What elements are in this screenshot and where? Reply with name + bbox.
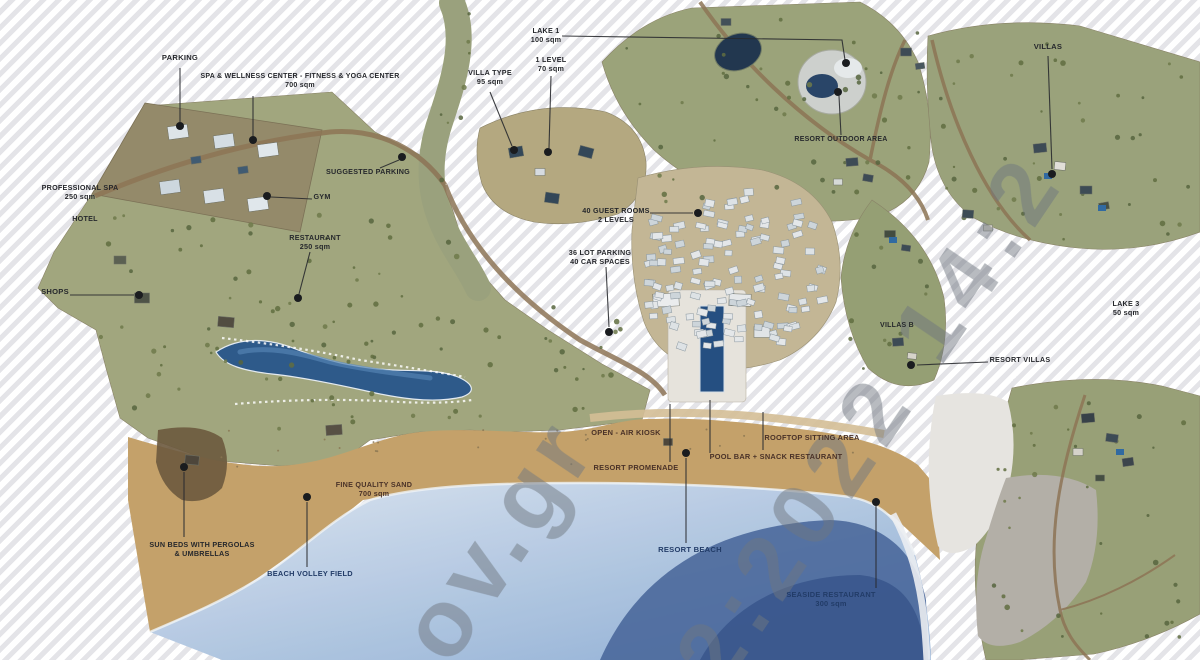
tree: [1032, 472, 1037, 477]
tree: [292, 340, 295, 343]
tree: [1186, 185, 1190, 189]
tree: [483, 327, 488, 332]
tree: [945, 187, 948, 190]
map-label-hotel: HOTEL: [72, 214, 98, 223]
villa-pool: [889, 237, 897, 243]
tree: [1054, 405, 1059, 410]
tree: [582, 368, 584, 370]
tree: [277, 427, 281, 431]
tree: [129, 269, 133, 273]
building: [662, 306, 672, 315]
building: [191, 156, 202, 164]
tree: [453, 409, 458, 414]
masterplan-canvas: ov.gr 12:2022 14:2 PARKINGSPA & WELLNESS…: [0, 0, 1200, 660]
masterplan-map: ov.gr 12:2022 14:2 PARKINGSPA & WELLNESS…: [0, 0, 1200, 660]
tree: [724, 74, 729, 79]
tree: [916, 31, 920, 35]
tree: [1010, 74, 1013, 77]
tree: [992, 583, 996, 587]
map-label-lake-1: LAKE 1100 sqm: [531, 26, 562, 44]
beach-speck: [585, 434, 587, 436]
tree: [802, 97, 806, 101]
map-label-resort-beach: RESORT BEACH: [658, 545, 722, 554]
building: [705, 281, 715, 287]
building: [737, 325, 746, 333]
leader-line-lot-parking: [606, 267, 609, 327]
tree: [1168, 62, 1171, 65]
tree: [755, 98, 758, 101]
leader-dot-gym: [263, 192, 271, 200]
building: [657, 259, 666, 266]
tree: [450, 319, 455, 324]
building: [885, 231, 896, 238]
map-label-rooftop-sitting-area: ROOFTOP SITTING AREA: [764, 433, 860, 442]
tree: [386, 224, 391, 229]
building: [664, 249, 672, 255]
villa-pool: [1098, 205, 1106, 211]
map-label-parking: PARKING: [162, 53, 198, 62]
tree: [369, 218, 374, 223]
tree: [177, 388, 180, 391]
tree: [373, 301, 378, 306]
tree: [1153, 560, 1159, 566]
leader-dot-beach-volley: [303, 493, 311, 501]
tree: [246, 269, 251, 274]
tree: [554, 368, 558, 372]
tree: [347, 360, 351, 364]
tree: [1099, 542, 1102, 545]
building: [1033, 143, 1047, 153]
tree: [224, 359, 228, 363]
leader-dot-lake-1: [842, 59, 850, 67]
leader-dot-villa-type: [510, 146, 518, 154]
tree: [157, 372, 162, 377]
building: [203, 188, 225, 204]
tree: [439, 178, 444, 183]
tree: [440, 347, 443, 350]
tree: [186, 225, 191, 230]
tree: [549, 339, 553, 343]
tree: [1170, 621, 1173, 624]
tree: [122, 214, 125, 217]
tree: [1012, 423, 1016, 427]
building: [725, 250, 732, 256]
leader-dot-resort-outdoor-area: [834, 88, 842, 96]
tree: [879, 246, 883, 250]
tree: [1137, 414, 1142, 419]
leader-dot-lot-parking: [605, 328, 613, 336]
building: [834, 179, 843, 185]
tree: [852, 41, 856, 45]
tree: [321, 343, 326, 348]
tree: [560, 349, 565, 354]
tree: [113, 216, 117, 220]
tree: [1004, 605, 1010, 611]
building: [773, 247, 784, 255]
tree: [774, 107, 778, 111]
tree: [275, 306, 280, 311]
building: [686, 314, 694, 321]
tree: [854, 232, 859, 237]
building: [257, 142, 279, 158]
building: [714, 240, 723, 247]
map-label-gym: GYM: [313, 192, 330, 201]
tree: [210, 217, 215, 222]
building: [664, 439, 673, 446]
map-label-resort-villas: RESORT VILLAS: [990, 355, 1051, 364]
tree: [440, 113, 443, 116]
beach-speck: [377, 442, 379, 444]
building: [673, 257, 684, 264]
tree: [952, 177, 957, 182]
tree: [713, 139, 715, 141]
tree: [614, 319, 620, 325]
beach-speck: [277, 450, 279, 452]
tree: [347, 303, 352, 308]
tree: [436, 316, 440, 320]
building: [1106, 433, 1119, 443]
building: [798, 298, 807, 305]
building: [707, 305, 715, 312]
tree: [466, 40, 470, 44]
building: [218, 316, 235, 327]
building: [805, 248, 814, 255]
leader-dot-resort-beach: [682, 449, 690, 457]
tree: [807, 82, 812, 87]
tree: [467, 12, 470, 15]
tree: [1153, 178, 1157, 182]
tree: [1181, 420, 1186, 425]
tree: [1054, 58, 1058, 62]
building: [1081, 413, 1095, 423]
tree: [446, 240, 451, 245]
tree: [849, 318, 854, 323]
tree: [215, 347, 219, 351]
tree: [1152, 447, 1154, 449]
tree: [364, 342, 368, 346]
map-label-villas-b: VILLAS B: [880, 322, 914, 329]
tree: [1128, 203, 1131, 206]
leader-dot-sun-beds: [180, 463, 188, 471]
tree: [207, 327, 210, 330]
building: [862, 174, 873, 183]
building: [114, 256, 126, 264]
tree: [1180, 75, 1184, 79]
tree: [970, 54, 974, 58]
tree: [848, 337, 852, 341]
leader-dot-villas-north: [1048, 170, 1056, 178]
tree: [132, 405, 137, 410]
tree: [785, 81, 790, 86]
leader-dot-restaurant: [294, 294, 302, 302]
tree: [601, 374, 605, 378]
tree: [872, 265, 877, 270]
tree: [939, 97, 943, 101]
tree: [1131, 136, 1135, 140]
tree: [392, 331, 396, 335]
tree: [1040, 110, 1042, 112]
building: [238, 166, 249, 174]
tree: [1062, 238, 1065, 241]
tree: [672, 178, 674, 180]
beach-speck: [324, 439, 326, 441]
building: [185, 455, 200, 465]
building: [213, 133, 235, 149]
tree: [563, 366, 566, 369]
tree: [1177, 222, 1181, 226]
building: [846, 157, 859, 166]
tree: [722, 53, 726, 57]
tree: [497, 335, 501, 339]
villa-pool: [1116, 449, 1124, 455]
building: [535, 169, 545, 176]
tree: [872, 93, 877, 98]
tree: [1160, 221, 1166, 227]
tree: [658, 145, 663, 150]
tree: [370, 355, 374, 359]
tree: [106, 241, 111, 246]
tree: [572, 407, 577, 412]
building: [744, 188, 754, 196]
tree: [882, 117, 887, 122]
tree: [1147, 514, 1150, 517]
tree: [1173, 583, 1177, 587]
building: [1096, 475, 1105, 481]
beach-speck: [236, 466, 238, 468]
tree: [151, 349, 156, 354]
tree: [941, 124, 946, 129]
tree: [233, 277, 237, 281]
tree: [238, 360, 243, 365]
tree: [759, 67, 762, 70]
tree: [854, 190, 859, 195]
tree: [160, 364, 163, 367]
tree: [1166, 232, 1170, 236]
tree: [259, 300, 262, 303]
tree: [163, 345, 166, 348]
leader-dot-shops: [135, 291, 143, 299]
building: [781, 240, 790, 248]
tree: [288, 302, 291, 305]
tree: [332, 403, 335, 406]
building: [807, 285, 815, 292]
tree: [865, 67, 868, 70]
tree: [551, 305, 555, 309]
beach-speck: [376, 450, 378, 452]
tree: [1086, 486, 1089, 489]
tree: [146, 393, 151, 398]
building: [703, 244, 713, 250]
tree: [317, 213, 322, 218]
tree: [323, 324, 328, 329]
tree: [953, 82, 956, 85]
tree: [371, 340, 374, 343]
map-label-resort-promenade: RESORT PROMENADE: [594, 463, 679, 472]
building: [901, 244, 911, 251]
tree: [459, 115, 464, 120]
tree: [351, 415, 354, 418]
building: [735, 337, 744, 342]
beach-speck: [228, 430, 230, 432]
tree: [662, 192, 667, 197]
building: [699, 258, 710, 266]
tree: [468, 52, 471, 55]
building: [646, 254, 655, 261]
tree: [289, 362, 294, 367]
building: [652, 232, 663, 239]
tree: [1021, 629, 1024, 632]
beach-speck: [689, 448, 691, 450]
tree: [1142, 96, 1145, 99]
building: [784, 326, 793, 332]
tree: [618, 327, 623, 332]
building: [915, 62, 925, 69]
map-label-villas-north: VILLAS: [1034, 42, 1063, 51]
tree: [271, 309, 275, 313]
tree: [1002, 594, 1006, 598]
beach-speck: [339, 447, 341, 449]
tree: [956, 60, 960, 64]
tree: [210, 352, 213, 355]
tree: [582, 407, 585, 410]
building: [670, 227, 679, 232]
tree: [779, 18, 783, 22]
tree: [1100, 612, 1102, 614]
building: [1122, 457, 1134, 466]
tree: [832, 190, 836, 194]
tree: [248, 231, 252, 235]
beach-speck: [373, 441, 375, 443]
tree: [856, 75, 862, 81]
building: [754, 324, 762, 331]
tree: [1056, 613, 1061, 618]
building: [775, 273, 783, 279]
tree: [178, 248, 182, 252]
main-pool: [700, 306, 724, 392]
leader-dot-spa-wellness-center: [249, 136, 257, 144]
tree: [1139, 133, 1142, 136]
building: [717, 298, 726, 304]
tree: [1178, 635, 1182, 639]
tree: [1033, 444, 1036, 447]
tree: [613, 330, 618, 335]
tree: [1067, 428, 1069, 430]
beach-speck: [477, 446, 479, 448]
tree: [1030, 432, 1033, 435]
tree: [1019, 60, 1024, 65]
building: [789, 307, 797, 313]
tree: [388, 235, 393, 240]
building: [326, 424, 343, 435]
map-label-villa-type: VILLA TYPE95 sqm: [468, 68, 512, 86]
tree: [332, 321, 335, 324]
tree: [657, 173, 661, 177]
leader-dot-one-level: [544, 148, 552, 156]
tree: [1115, 135, 1120, 140]
tree: [782, 112, 786, 116]
tree: [1116, 94, 1120, 98]
tree: [333, 356, 337, 360]
building: [644, 279, 654, 286]
tree: [716, 34, 720, 38]
tree: [1145, 634, 1149, 638]
leader-dot-parking: [176, 122, 184, 130]
tree: [953, 166, 955, 168]
tree: [876, 160, 881, 165]
map-label-spa-wellness-center: SPA & WELLNESS CENTER - FITNESS & YOGA C…: [200, 73, 399, 89]
tree: [907, 146, 910, 149]
building: [1054, 161, 1066, 170]
building: [1073, 449, 1083, 456]
tree: [746, 85, 749, 88]
tree: [787, 96, 791, 100]
tree: [1061, 635, 1064, 638]
tree: [1003, 500, 1006, 503]
tree: [1074, 445, 1077, 448]
tree: [865, 160, 869, 164]
tree: [205, 343, 210, 348]
tree: [811, 159, 816, 164]
beach-speck: [482, 429, 484, 431]
tree: [99, 335, 103, 339]
tree: [843, 87, 848, 92]
building: [721, 19, 731, 26]
map-label-suggested-parking: SUGGESTED PARKING: [326, 167, 410, 176]
tree: [265, 377, 268, 380]
map-label-pool-bar: POOL BAR + SNACK RESTAURANT: [710, 452, 843, 461]
tree: [917, 91, 920, 94]
tree: [248, 222, 253, 227]
leader-dot-guest-rooms: [694, 209, 702, 217]
tree: [997, 468, 1000, 471]
tree: [350, 419, 355, 424]
building: [670, 266, 681, 273]
tree: [171, 229, 174, 232]
building: [645, 301, 654, 308]
tree: [462, 85, 467, 90]
map-label-open-air-kiosk: OPEN - AIR KIOSK: [591, 428, 661, 437]
leader-dot-suggested-parking: [398, 153, 406, 161]
beach-speck: [220, 456, 222, 458]
map-label-lot-parking: 36 LOT PARKING40 CAR SPACES: [569, 248, 632, 266]
building: [693, 268, 702, 274]
tree: [479, 415, 482, 418]
tree: [229, 297, 232, 300]
leader-dot-seaside-restaurant: [872, 498, 880, 506]
tree: [1081, 118, 1085, 122]
tree: [1060, 60, 1066, 66]
building: [649, 313, 657, 319]
building: [734, 276, 741, 283]
tree: [898, 95, 903, 100]
tree: [664, 200, 667, 203]
building: [723, 313, 733, 319]
tree: [1078, 102, 1081, 105]
leader-dot-resort-villas: [907, 361, 915, 369]
map-label-resort-outdoor-area: RESORT OUTDOOR AREA: [794, 136, 887, 143]
tree: [448, 416, 451, 419]
tree: [1003, 468, 1006, 471]
tree: [120, 325, 123, 328]
tree: [880, 71, 883, 74]
building: [159, 179, 181, 195]
tree: [411, 414, 415, 418]
map-label-one-level: 1 LEVEL70 sqm: [536, 55, 567, 73]
tree: [290, 322, 295, 327]
tree: [857, 80, 861, 84]
building: [801, 306, 810, 312]
tree: [681, 101, 684, 104]
